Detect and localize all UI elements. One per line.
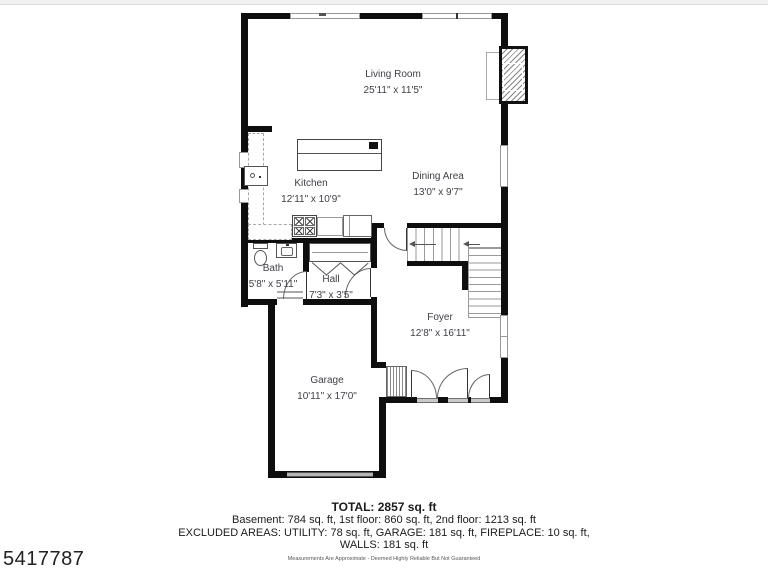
- room-label-kitchen: Kitchen 12'11" x 10'9": [281, 176, 341, 207]
- room-name: Garage: [297, 373, 357, 389]
- window: [500, 145, 508, 187]
- excluded-areas-line1: EXCLUDED AREAS: UTILITY: 78 sq. ft, GARA…: [0, 527, 768, 539]
- dishwasher-line: [349, 216, 350, 236]
- room-dims: 25'11" x 11'5": [364, 83, 423, 99]
- entry-door-swing-left: [411, 370, 437, 398]
- top-strip: [0, 0, 768, 5]
- wall: [371, 362, 386, 368]
- floor-areas: Basement: 784 sq. ft, 1st floor: 860 sq.…: [0, 514, 768, 526]
- staircase-lower-flight: [468, 247, 501, 318]
- room-dims: 12'8" x 16'11": [410, 326, 470, 342]
- photo-id: 5417787: [3, 548, 84, 571]
- stair-arrow-head: [463, 241, 469, 247]
- wall: [241, 126, 272, 132]
- room-dims: 12'11" x 10'9": [281, 192, 341, 208]
- entry-sidelight: [417, 398, 438, 403]
- wall: [360, 13, 422, 19]
- wall: [379, 397, 386, 478]
- stove-icon: [292, 215, 317, 237]
- disclaimer: Measurements Are Approximate - Deemed Hi…: [0, 556, 768, 562]
- area-summary: TOTAL: 2857 sq. ft Basement: 784 sq. ft,…: [0, 500, 768, 562]
- counter-section: [317, 217, 343, 236]
- kitchen-counter: [248, 224, 292, 240]
- fireplace-flue: [503, 63, 523, 91]
- stove-burners: [294, 217, 315, 235]
- room-dims: 10'11" x 17'0": [297, 389, 357, 405]
- wall: [241, 203, 248, 307]
- faucet-icon: [250, 173, 255, 178]
- room-dims: 13'0" x 9'7": [412, 185, 464, 201]
- wall: [490, 397, 508, 403]
- window-mullion: [319, 13, 326, 16]
- total-area: TOTAL: 2857 sq. ft: [0, 500, 768, 514]
- basement-stair-door-swing: [384, 228, 407, 251]
- room-name: Hall: [309, 272, 353, 288]
- room-label-dining: Dining Area 13'0" x 9'7": [412, 169, 464, 200]
- entry-door-swing-right: [437, 368, 468, 398]
- faucet-dot: [286, 244, 289, 246]
- bath-vanity: [276, 243, 297, 258]
- excluded-areas-line2: WALLS: 181 sq. ft: [0, 539, 768, 551]
- room-name: Dining Area: [412, 169, 464, 185]
- wall: [501, 104, 508, 145]
- wall: [501, 13, 508, 47]
- room-dims: 5'8" x 5'11": [249, 277, 298, 293]
- dishwasher: [343, 215, 372, 237]
- closet-rod: [312, 252, 368, 253]
- wall: [371, 297, 377, 368]
- kitchen-sink: [244, 166, 268, 186]
- room-name: Kitchen: [281, 176, 341, 192]
- kitchen-island: [297, 139, 382, 171]
- stair-direction-arrow: [414, 244, 436, 245]
- wall: [268, 299, 275, 478]
- island-counter-line: [298, 153, 381, 154]
- entry-sidelight: [448, 398, 468, 403]
- room-name: Living Room: [364, 67, 423, 83]
- toilet-tank: [253, 243, 268, 249]
- window-mullion: [456, 13, 458, 19]
- wall: [241, 13, 290, 19]
- wall: [407, 261, 468, 266]
- coat-closet-door-swing: [468, 374, 490, 398]
- utility-closet: [386, 366, 407, 397]
- entry-sidelight: [471, 398, 490, 403]
- drain-dot: [259, 176, 261, 178]
- room-label-foyer: Foyer 12'8" x 16'11": [410, 310, 470, 341]
- wall: [501, 187, 508, 315]
- island-sink: [369, 142, 378, 149]
- sink-basin: [281, 247, 293, 256]
- stair-direction-arrow: [468, 244, 480, 245]
- room-dims: 7'3" x 3'5": [309, 288, 353, 304]
- room-name: Bath: [249, 261, 298, 277]
- hall-closet: [309, 243, 371, 262]
- stair-arrow-head: [409, 241, 415, 247]
- garage-door: [287, 472, 373, 477]
- wall: [377, 223, 384, 228]
- floorplan-canvas: Living Room 25'11" x 11'5" Kitchen 12'11…: [0, 0, 768, 576]
- room-label-bath: Bath 5'8" x 5'11": [249, 261, 298, 292]
- room-label-garage: Garage 10'11" x 17'0": [297, 373, 357, 404]
- window-mullion: [500, 336, 508, 337]
- room-label-hall: Hall 7'3" x 3'5": [309, 272, 353, 303]
- room-label-living: Living Room 25'11" x 11'5": [364, 67, 423, 98]
- room-name: Foyer: [410, 310, 470, 326]
